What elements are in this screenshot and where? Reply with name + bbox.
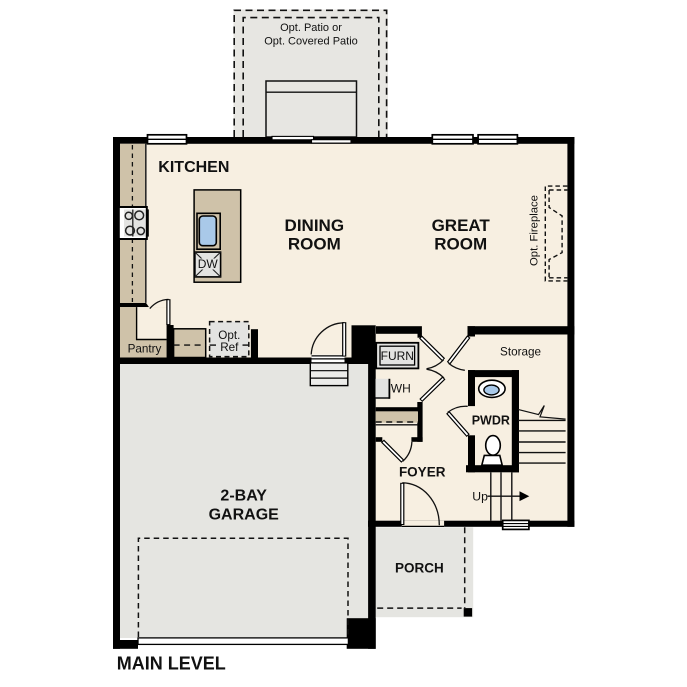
svg-text:Opt. Covered Patio: Opt. Covered Patio xyxy=(264,35,358,47)
svg-text:PORCH: PORCH xyxy=(395,560,444,575)
svg-text:Storage: Storage xyxy=(500,346,541,359)
svg-text:ROOM: ROOM xyxy=(434,234,487,253)
svg-text:Up: Up xyxy=(472,490,488,504)
svg-text:Ref: Ref xyxy=(220,341,239,354)
svg-text:WH: WH xyxy=(391,381,411,395)
svg-text:ROOM: ROOM xyxy=(288,234,341,253)
svg-text:GARAGE: GARAGE xyxy=(209,507,280,524)
svg-text:Pantry: Pantry xyxy=(128,343,162,356)
svg-text:PWDR: PWDR xyxy=(472,413,510,427)
svg-text:KITCHEN: KITCHEN xyxy=(158,159,229,176)
svg-text:MAIN LEVEL: MAIN LEVEL xyxy=(117,654,226,674)
svg-text:DW: DW xyxy=(198,257,219,271)
svg-text:DINING: DINING xyxy=(285,216,345,235)
svg-text:FOYER: FOYER xyxy=(399,464,446,479)
svg-text:GREAT: GREAT xyxy=(432,216,491,235)
svg-text:Opt. Patio or: Opt. Patio or xyxy=(280,22,342,34)
svg-text:FURN: FURN xyxy=(381,349,414,363)
svg-text:2-BAY: 2-BAY xyxy=(220,487,267,504)
svg-text:Opt. Fireplace: Opt. Fireplace xyxy=(529,195,541,266)
